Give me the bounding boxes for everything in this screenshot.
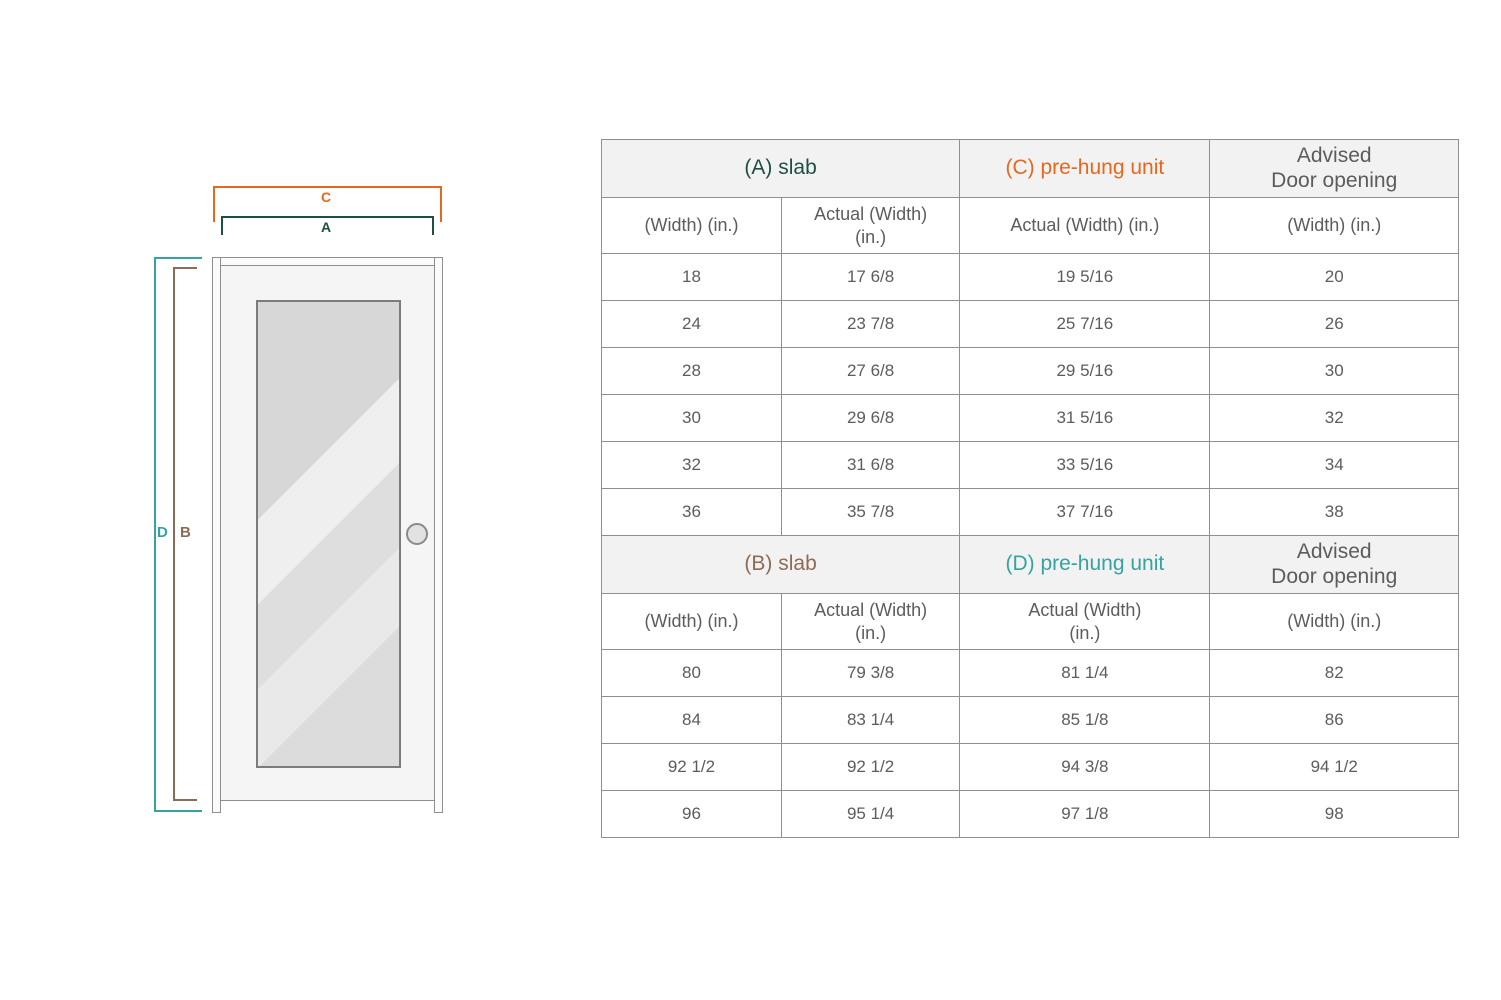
section-header-cell: (C) pre-hung unit bbox=[960, 140, 1210, 198]
column-header-cell: (Width) (in.) bbox=[602, 594, 782, 650]
table-cell: 94 3/8 bbox=[960, 744, 1210, 791]
table-cell: 29 5/16 bbox=[960, 348, 1210, 395]
table-cell: 35 7/8 bbox=[781, 489, 959, 536]
table-cell: 31 5/16 bbox=[960, 395, 1210, 442]
table-cell: 29 6/8 bbox=[781, 395, 959, 442]
table-cell: 97 1/8 bbox=[960, 791, 1210, 838]
table-cell: 98 bbox=[1210, 791, 1459, 838]
door-width-table-wrap: (A) slab(C) pre-hung unitAdvisedDoor ope… bbox=[601, 139, 1459, 838]
table-cell: 23 7/8 bbox=[781, 301, 959, 348]
section-header-cell: AdvisedDoor opening bbox=[1210, 536, 1459, 594]
table-row: 8079 3/881 1/482 bbox=[602, 650, 1459, 697]
door-frame-right-jamb bbox=[434, 257, 443, 813]
door-width-table: (A) slab(C) pre-hung unitAdvisedDoor ope… bbox=[601, 139, 1459, 838]
table-cell: 30 bbox=[602, 395, 782, 442]
dimension-b-label: B bbox=[180, 524, 192, 541]
section-header-row: (A) slab(C) pre-hung unitAdvisedDoor ope… bbox=[602, 140, 1459, 198]
table-cell: 30 bbox=[1210, 348, 1459, 395]
column-header-cell: Actual (Width)(in.) bbox=[781, 198, 959, 254]
table-cell: 24 bbox=[602, 301, 782, 348]
table-cell: 96 bbox=[602, 791, 782, 838]
table-cell: 92 1/2 bbox=[781, 744, 959, 791]
table-cell: 26 bbox=[1210, 301, 1459, 348]
table-cell: 28 bbox=[602, 348, 782, 395]
table-row: 3231 6/833 5/1634 bbox=[602, 442, 1459, 489]
table-cell: 85 1/8 bbox=[960, 697, 1210, 744]
table-row: 3029 6/831 5/1632 bbox=[602, 395, 1459, 442]
column-header-cell: (Width) (in.) bbox=[1210, 594, 1459, 650]
table-cell: 31 6/8 bbox=[781, 442, 959, 489]
table-cell: 19 5/16 bbox=[960, 254, 1210, 301]
column-header-cell: (Width) (in.) bbox=[602, 198, 782, 254]
table-cell: 82 bbox=[1210, 650, 1459, 697]
section-header-cell: (B) slab bbox=[602, 536, 960, 594]
table-cell: 84 bbox=[602, 697, 782, 744]
table-row: 8483 1/485 1/886 bbox=[602, 697, 1459, 744]
section-header-cell: (D) pre-hung unit bbox=[960, 536, 1210, 594]
table-row: 2827 6/829 5/1630 bbox=[602, 348, 1459, 395]
door-frame-head-jamb bbox=[212, 257, 443, 266]
table-row: 92 1/292 1/294 3/894 1/2 bbox=[602, 744, 1459, 791]
dimension-c-label: C bbox=[321, 189, 332, 205]
column-header-row: (Width) (in.)Actual (Width)(in.)Actual (… bbox=[602, 594, 1459, 650]
table-cell: 38 bbox=[1210, 489, 1459, 536]
table-row: 9695 1/497 1/898 bbox=[602, 791, 1459, 838]
table-cell: 25 7/16 bbox=[960, 301, 1210, 348]
table-cell: 18 bbox=[602, 254, 782, 301]
table-cell: 37 7/16 bbox=[960, 489, 1210, 536]
table-cell: 81 1/4 bbox=[960, 650, 1210, 697]
section-header-cell: (A) slab bbox=[602, 140, 960, 198]
table-cell: 94 1/2 bbox=[1210, 744, 1459, 791]
table-cell: 83 1/4 bbox=[781, 697, 959, 744]
table-cell: 17 6/8 bbox=[781, 254, 959, 301]
door-knob bbox=[406, 523, 428, 545]
section-header-cell: AdvisedDoor opening bbox=[1210, 140, 1459, 198]
table-cell: 92 1/2 bbox=[602, 744, 782, 791]
door-width-table-body: (A) slab(C) pre-hung unitAdvisedDoor ope… bbox=[602, 140, 1459, 838]
column-header-row: (Width) (in.)Actual (Width)(in.)Actual (… bbox=[602, 198, 1459, 254]
table-cell: 32 bbox=[602, 442, 782, 489]
table-cell: 36 bbox=[602, 489, 782, 536]
page: C A D B (A) slab(C) pre-hung u bbox=[0, 0, 1501, 1000]
column-header-cell: (Width) (in.) bbox=[1210, 198, 1459, 254]
table-row: 1817 6/819 5/1620 bbox=[602, 254, 1459, 301]
door-glass-panel bbox=[256, 300, 401, 768]
section-header-row: (B) slab(D) pre-hung unitAdvisedDoor ope… bbox=[602, 536, 1459, 594]
table-cell: 27 6/8 bbox=[781, 348, 959, 395]
table-cell: 86 bbox=[1210, 697, 1459, 744]
table-cell: 33 5/16 bbox=[960, 442, 1210, 489]
table-row: 3635 7/837 7/1638 bbox=[602, 489, 1459, 536]
column-header-cell: Actual (Width) (in.) bbox=[960, 198, 1210, 254]
table-cell: 95 1/4 bbox=[781, 791, 959, 838]
dimension-d-label: D bbox=[157, 524, 169, 541]
column-header-cell: Actual (Width)(in.) bbox=[960, 594, 1210, 650]
table-cell: 79 3/8 bbox=[781, 650, 959, 697]
table-cell: 20 bbox=[1210, 254, 1459, 301]
table-cell: 32 bbox=[1210, 395, 1459, 442]
door-frame-left-jamb bbox=[212, 257, 221, 813]
column-header-cell: Actual (Width)(in.) bbox=[781, 594, 959, 650]
table-cell: 80 bbox=[602, 650, 782, 697]
dimension-a-label: A bbox=[321, 219, 332, 235]
table-row: 2423 7/825 7/1626 bbox=[602, 301, 1459, 348]
table-cell: 34 bbox=[1210, 442, 1459, 489]
